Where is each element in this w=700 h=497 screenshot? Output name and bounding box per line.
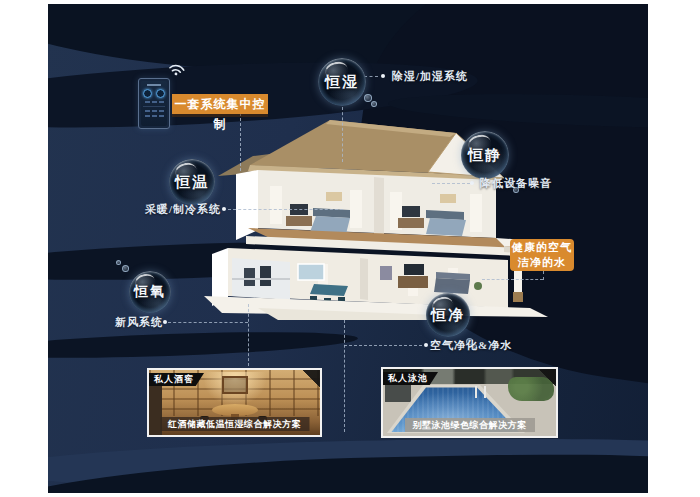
corner-ribbon <box>296 370 320 394</box>
connector-health-box <box>482 279 543 280</box>
label-air-water-purification: 空气净化&净水 <box>430 338 512 353</box>
bubble-constant-oxygen: 恒氧 <box>129 271 171 313</box>
mini-bubble <box>122 265 129 272</box>
central-control-tag: 一套系统集中控制 <box>172 94 268 114</box>
connector-dot <box>381 74 385 78</box>
connector-dot <box>222 207 226 211</box>
hanging-rack <box>222 376 248 394</box>
phone-header <box>147 84 161 86</box>
healthy-air-water-tag: 健康的空气 洁净的水 <box>510 239 574 271</box>
infographic-smart-home: 一套系统集中控制 恒湿 除湿/加湿系统 恒静 降低设备噪音 恒温 采暖/制冷系统… <box>0 0 700 497</box>
wine-cellar-photo-card: 私人酒窖 红酒储藏低温恒湿综合解决方案 <box>147 368 322 437</box>
label-fresh-air-system: 新风系统 <box>115 315 163 330</box>
pool-ladder <box>475 386 486 398</box>
wine-badge: 私人酒窖 <box>149 373 204 386</box>
connector-humidity-label <box>364 76 378 77</box>
humidity-dial-icon <box>156 89 165 98</box>
connector-dot <box>424 343 428 347</box>
diagram-canvas: 一套系统集中控制 恒湿 除湿/加湿系统 恒静 降低设备噪音 恒温 采暖/制冷系统… <box>48 4 648 493</box>
connector-winecellar <box>248 304 249 366</box>
pool-badge: 私人泳池 <box>383 372 438 385</box>
bubble-label: 恒温 <box>175 173 209 192</box>
connector-quiet-label <box>432 183 470 184</box>
wine-caption: 红酒储藏低温恒湿综合解决方案 <box>160 417 309 431</box>
connector-purify-label <box>344 345 422 346</box>
health-line2: 洁净的水 <box>510 255 574 270</box>
corner-ribbon <box>532 369 556 393</box>
connector-freshair-label <box>168 322 248 323</box>
bubble-label: 恒静 <box>468 146 502 165</box>
bg-wave <box>48 433 648 493</box>
connector-dot <box>470 181 474 185</box>
bg-wave <box>48 327 358 362</box>
smart-control-panel <box>138 78 170 129</box>
label-noise-reduction: 降低设备噪音 <box>480 176 552 191</box>
connector-humidity-to-house <box>342 107 343 162</box>
mini-bubble <box>116 260 121 265</box>
connector-control-to-house <box>240 113 241 171</box>
connector-dot <box>163 320 167 324</box>
bubble-constant-temperature: 恒温 <box>169 159 215 205</box>
health-line1: 健康的空气 <box>510 240 574 255</box>
pool-caption: 别墅泳池绿色综合解决方案 <box>405 418 535 432</box>
connector-heating-label <box>228 209 343 210</box>
label-dehumidify-system: 除湿/加湿系统 <box>392 69 468 84</box>
bubble-constant-clean: 恒净 <box>426 293 470 337</box>
bubble-label: 恒氧 <box>134 283 166 301</box>
bubble-constant-humidity: 恒湿 <box>318 58 366 106</box>
phone-screen <box>141 81 167 126</box>
connector-pool <box>344 320 345 432</box>
house-cutaway-illustration <box>198 108 568 320</box>
temperature-dial-icon <box>143 89 152 98</box>
mini-bubble <box>364 94 372 102</box>
bubble-constant-quiet: 恒静 <box>461 131 509 179</box>
pool-glass-wall <box>385 384 411 402</box>
pool-photo-card: 私人泳池 别墅泳池绿色综合解决方案 <box>381 367 558 438</box>
bubble-label: 恒净 <box>431 306 465 325</box>
mini-bubble <box>371 101 377 107</box>
wifi-icon <box>167 59 188 78</box>
bg-wave <box>48 447 648 493</box>
label-heating-cooling-system: 采暖/制冷系统 <box>145 202 221 217</box>
connector-health-box <box>543 271 544 280</box>
bubble-label: 恒湿 <box>325 73 359 92</box>
